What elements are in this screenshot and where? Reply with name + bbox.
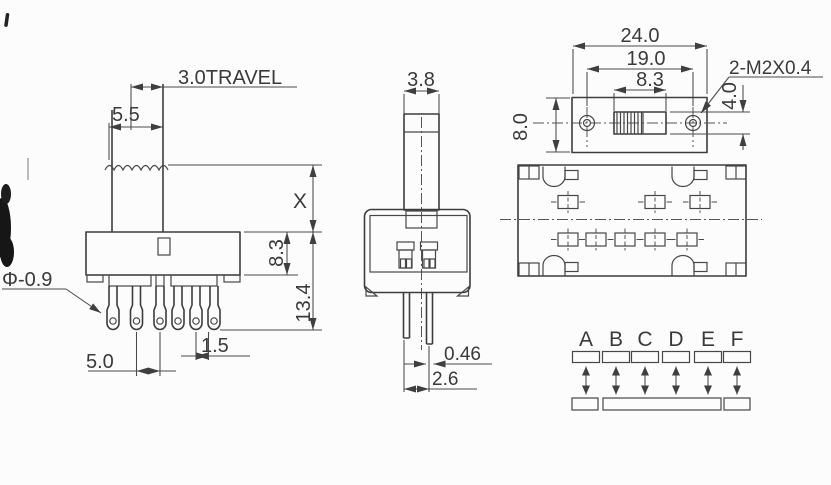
pcb-view [500,165,762,276]
solder-pins [107,286,220,330]
dim-pin-offset-label: 1.5 [201,335,229,357]
dim-pin-hole-label: Φ-0.9 [2,269,52,291]
travel-slot [614,112,666,134]
position-label-e: E [701,328,715,351]
dim-slot-length-label: 8.3 [636,69,664,91]
dim-leg-thickness-label: 0.46 [444,344,481,365]
dim-body-width-label: 8.0 [510,113,532,141]
dim-pin-span-label: 5.0 [86,351,114,373]
left-leg [404,293,410,339]
contact-bar-common [603,398,721,410]
top-view: 24.0 19.0 8.3 8.0 4.0 2-M2X0.4 [510,25,823,153]
switch-schematic: A B C D E F [572,328,751,410]
contact-bar-a [572,398,598,410]
break-line [105,166,168,171]
dim-body-length-label: 24.0 [621,25,660,47]
position-label-a: A [579,328,593,351]
slide-switch-drawing: 3.0TRAVEL 5.5 Φ-0.9 X 8 [0,0,831,485]
technical-drawing-page: 3.0TRAVEL 5.5 Φ-0.9 X 8 [0,0,831,485]
contacts [397,242,438,268]
dim-travel-label: 3.0TRAVEL [178,67,282,89]
dim-knob-thickness-label: 3.8 [407,69,435,91]
dim-body-height-label: 8.3 [266,239,288,267]
body-side [365,210,471,293]
contact-bar-f [724,398,750,410]
dim-shaft-height-label: X [293,190,307,213]
top-body [572,98,707,153]
dim-knob-width-label: 5.5 [112,104,140,126]
solder-pads [551,191,717,251]
dim-overall-height-label: 13.4 [293,284,315,323]
pcb-outline [518,165,746,276]
position-label-d: D [668,328,683,351]
position-label-f: F [731,328,744,351]
front-view: 3.0TRAVEL 5.5 Φ-0.9 X 8 [2,67,322,376]
position-label-b: B [609,328,623,351]
right-leg [427,293,433,345]
scan-artifacts [0,13,28,267]
mount-hole-spec-label: 2-M2X0.4 [729,58,812,79]
side-view: 3.8 0.46 2.6 [365,69,493,392]
dim-hole-pitch-label: 19.0 [627,48,666,70]
body-marker [158,238,170,255]
position-label-c: C [637,328,652,351]
dim-leg-spacing-label: 2.6 [432,369,458,390]
